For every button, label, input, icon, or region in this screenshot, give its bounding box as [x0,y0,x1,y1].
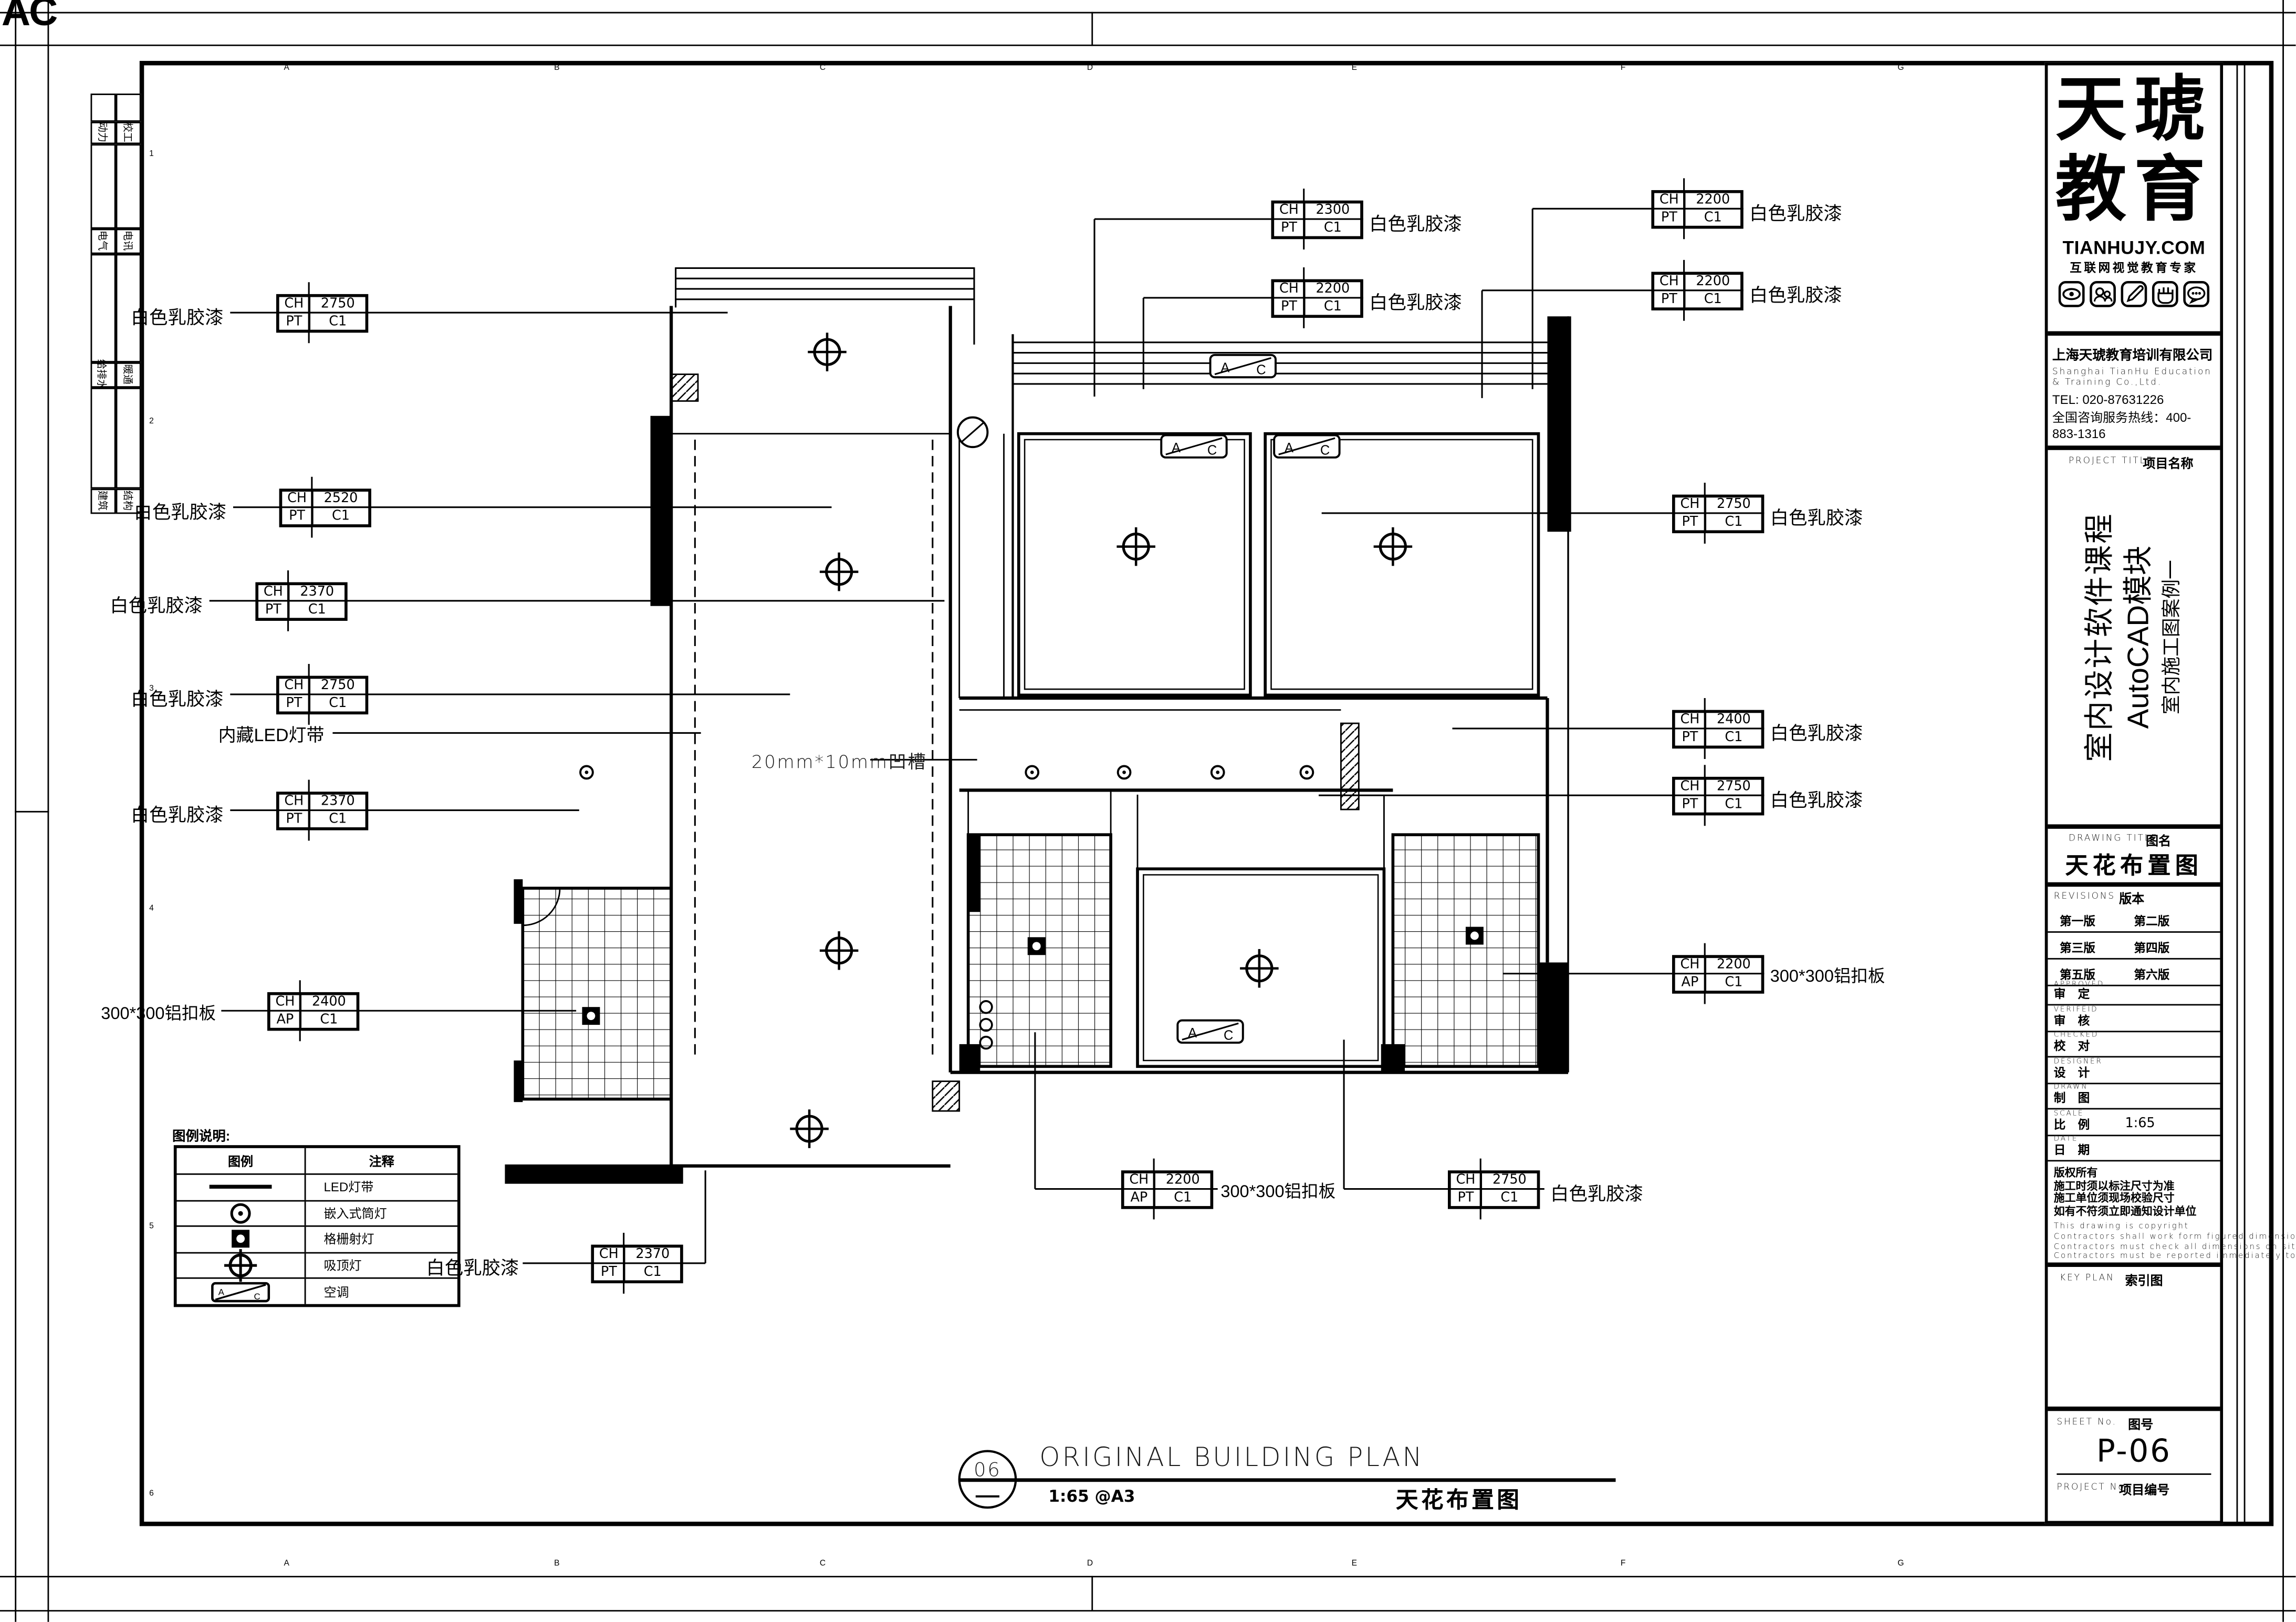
finish-label: 白色乳胶漆 [133,496,226,524]
strip-cell: 暖通 [116,362,141,388]
ceiling-lamp-symbol [176,1253,306,1278]
grid-letter-bottom: F [1616,1559,1631,1568]
sign-row-scale: SCALE比 例1:65 [2048,1110,2220,1136]
company-name-cn: 上海天琥教育培训有限公司 [2052,345,2216,364]
finish-label-box: CH2750PTC1 [276,294,368,333]
view-name: ORIGINAL BUILDING PLAN [1039,1444,1424,1474]
note-en: Contractors must be reported immediately… [2054,1252,2220,1262]
grid-number-left: 6 [144,1490,159,1499]
sheet-number: P-06 [2048,1433,2220,1469]
logo-section: 天琥 教育 TIANHUJY.COM 互联网视觉教育专家 [2048,65,2220,336]
grid-letter-top: D [1082,64,1097,73]
view-title-cn: 天花布置图 [1396,1484,1522,1515]
note-en: Contractors must check all dimensions on… [2054,1243,2220,1253]
finish-label: 300*300铝扣板 [1770,964,1885,987]
eye-icon [2058,280,2085,307]
drawing-title-en: DRAWING TITLE [2069,833,2158,844]
legend-table: 图例 注释 LED灯带 嵌入式筒灯 格栅射灯 吸顶灯 AC 空调 [174,1145,461,1307]
grid-letter-bottom: G [1893,1559,1908,1568]
key-plan-cn: 索引图 [2125,1272,2163,1290]
legend-header-symbol: 图例 [176,1148,306,1173]
led-strip-symbol [176,1175,306,1200]
revisions-en: REVISIONS [2054,891,2115,902]
groove-note: 20mm*10mm凹槽 [752,748,927,774]
logo-site: TIANHUJY.COM [2048,237,2220,258]
led-strip-note: 内藏LED灯带 [218,722,325,747]
sheet-no-cn: 图号 [2128,1416,2153,1433]
svg-text:A: A [218,1287,225,1297]
grid-number-left: 1 [144,150,159,159]
view-number: 06 [968,1460,1007,1482]
finish-label: 白色乳胶漆 [131,301,224,330]
grid-letter-top: B [549,64,564,73]
svg-text:C: C [254,1291,260,1301]
detail-callout-circle [958,418,988,448]
finish-label: 白色乳胶漆 [1749,197,1842,226]
grid-letter-top: F [1616,64,1631,73]
finish-label: 白色乳胶漆 [131,683,224,712]
grid-letter-bottom: D [1082,1559,1097,1568]
legend-desc: 嵌入式筒灯 [306,1201,457,1225]
finish-label-box: CH2750PTC1 [1672,777,1764,816]
leader-lines [210,178,1765,1294]
sheet-frame [142,63,2271,1524]
view-scale: 1:65 @A3 [1048,1487,1135,1506]
finish-label-box: CH2370PTC1 [591,1245,683,1284]
note-cn: 版权所有 [2054,1168,2220,1180]
key-plan-en: KEY PLAN [2060,1273,2115,1283]
sign-row-checked: CHECKED校 对 [2048,1032,2220,1058]
drawing-title-value: 天花布置图 [2048,848,2220,881]
grid-number-left: 4 [144,904,159,913]
legend-desc: LED灯带 [306,1175,457,1200]
sign-row-drawn: DRAWN制 图 [2048,1084,2220,1109]
project-title-section: PROJECT TITLE 项目名称 室内设计软件课程 AutoCAD模块 室内… [2048,445,2220,829]
finish-label: 白色乳胶漆 [131,799,224,827]
company-tel: TEL: 020-87631226 [2052,392,2216,407]
finish-label-box: CH2750PTC1 [1448,1170,1540,1209]
strip-cell: 建筑 [90,488,116,514]
legend-desc: 空调 [306,1280,457,1304]
sign-row-approved: APPROVED审 定 [2048,980,2220,1006]
people-icon [2090,280,2116,307]
drawing-title-cn: 图名 [2146,832,2171,850]
finish-label: 白色乳胶漆 [1550,1178,1643,1206]
project-no-cn: 项目编号 [2119,1481,2169,1499]
sheet-number-section: SHEET No. 图号 P-06 PROJECT No. 项目编号 [2048,1411,2220,1515]
fist-icon [2152,280,2178,307]
grid-number-left: 5 [144,1222,159,1231]
finish-label: 300*300铝扣板 [1220,1179,1335,1203]
pencil-icon [2121,280,2147,307]
finish-label-box: CH2200PTC1 [1271,279,1363,318]
finish-label-box: CH2370PTC1 [255,582,347,621]
logo-word-1: 天琥 [2048,71,2220,152]
title-block: 天琥 教育 TIANHUJY.COM 互联网视觉教育专家 上海天琥教育培训有限公… [2045,63,2223,1524]
chat-icon [2183,280,2210,307]
notes-section: 版权所有 施工时须以标注尺寸为准 施工单位须现场校验尺寸 如有不符须立即通知设计… [2048,1161,2220,1262]
legend-header-desc: 注释 [306,1148,457,1173]
grid-letter-top: G [1893,64,1908,73]
strip-cell: 给排水 [90,362,116,388]
revision-row: 第一版第二版 [2048,906,2220,933]
sign-row-date: DATE日 期 [2048,1136,2220,1161]
finish-label-box: CH2200APC1 [1672,955,1764,994]
sign-section: APPROVED审 定 VERIFEID审 核 CHECKED校 对 DESIG… [2048,980,2220,1161]
sign-row-verified: VERIFEID审 核 [2048,1006,2220,1032]
legend-title: 图例说明: [172,1126,230,1145]
revision-row: 第三版第四版 [2048,933,2220,960]
finish-label-box: CH2750PTC1 [276,676,368,715]
company-hotline: 全国咨询服务热线：400-883-1316 [2052,409,2216,441]
finish-label: 白色乳胶漆 [1770,784,1863,813]
finish-label: 300*300铝扣板 [101,1001,216,1025]
grid-letter-top: E [1347,64,1362,73]
logo-word-2: 教育 [2048,151,2220,232]
finish-label-box: CH2200PTC1 [1651,272,1743,310]
downlight-symbols [580,766,1313,779]
finish-label: 白色乳胶漆 [1770,718,1863,746]
company-name-en: Shanghai TianHu Education & Training Co.… [2052,367,2216,388]
note-cn: 如有不符须立即通知设计单位 [2054,1205,2220,1218]
strip-cell: 电气 [90,228,116,254]
finish-label: 白色乳胶漆 [1749,279,1842,308]
revisions-cn: 版本 [2119,890,2144,908]
corner-mark: AC [2,0,57,36]
air-conditioner-symbol: AC [176,1280,306,1304]
legend-desc: 吸顶灯 [306,1253,457,1278]
grid-letter-bottom: C [815,1559,830,1568]
sheet-no-en: SHEET No. [2057,1417,2116,1428]
project-title-text: 室内设计软件课程 AutoCAD模块 室内施工图案例一 [2083,448,2185,827]
finish-label-box: CH2400APC1 [267,992,359,1031]
company-section: 上海天琥教育培训有限公司 Shanghai TianHu Education &… [2048,336,2220,445]
grid-letter-top: C [815,64,830,73]
finish-label: 白色乳胶漆 [1369,208,1462,236]
finish-label: 白色乳胶漆 [1369,287,1462,315]
finish-label-box: CH2300PTC1 [1271,201,1363,240]
finish-label-box: CH2200APC1 [1121,1170,1213,1209]
drawing-title-section: DRAWING TITLE 图名 天花布置图 [2048,829,2220,887]
grid-letter-bottom: B [549,1559,564,1568]
note-en: This drawing is copyright [2054,1223,2220,1233]
revisions-section: REVISIONS 版本 第一版第二版 第三版第四版 第五版第六版 [2048,887,2220,980]
logo-icons [2048,280,2220,307]
project-no-en: PROJECT No. [2057,1482,2129,1493]
ceiling-cove-dashed-lines [695,440,932,1055]
grid-letter-bottom: A [279,1559,294,1568]
grid-number-left: 2 [144,418,159,427]
logo-tagline: 互联网视觉教育专家 [2048,260,2220,276]
legend-desc: 格栅射灯 [306,1227,457,1252]
grid-letter-bottom: E [1347,1559,1362,1568]
finish-label: 白色乳胶漆 [1770,502,1863,531]
drawing-sheet: A C [0,0,2296,1622]
finish-label-box: CH2520PTC1 [279,488,371,527]
finish-label-box: CH2750PTC1 [1672,495,1764,534]
finish-label-box: CH2200PTC1 [1651,190,1743,229]
key-plan-section: KEY PLAN 索引图 [2048,1263,2220,1411]
strip-cell: 动力 [90,122,116,144]
strip-cell: 校工 [116,122,141,144]
grid-letter-top: A [279,64,294,73]
strip-cell: 电讯 [116,228,141,254]
finish-label-box: CH2400PTC1 [1672,710,1764,749]
note-cn: 施工单位须现场校验尺寸 [2054,1193,2220,1205]
note-en: Contractors shall work form figured dime… [2054,1233,2220,1243]
plan-walls [523,267,1568,1166]
finish-label: 白色乳胶漆 [110,590,203,618]
finish-label-box: CH2370PTC1 [276,792,368,830]
recessed-downlight-symbol [176,1201,306,1225]
sign-row-designer: DESIGNER设 计 [2048,1058,2220,1084]
